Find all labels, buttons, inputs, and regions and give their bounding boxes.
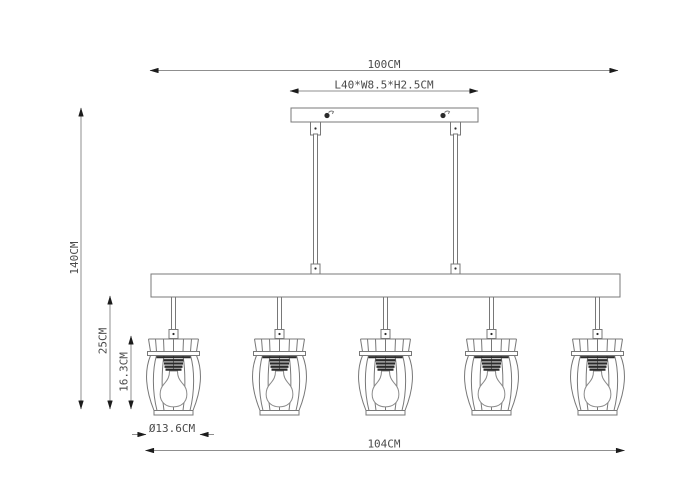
fixture-length-label: 104CM <box>367 438 400 451</box>
suspension-cable <box>314 134 318 265</box>
dim-canopy-size: L40*W8.5*H2.5CM <box>290 79 478 92</box>
lamp-cords <box>172 297 600 330</box>
lamp-cord <box>384 297 388 330</box>
dim-overall-width: 100CM <box>150 58 618 71</box>
dim-shade-height: 16.3CM <box>118 336 132 409</box>
lamp-cord <box>278 297 282 330</box>
cage-lamp <box>465 330 519 416</box>
dim-hanging-height: 25CM <box>97 296 111 409</box>
cord-grip <box>311 122 321 135</box>
shade-diameter-label: Ø13.6CM <box>149 422 196 435</box>
overall-width-label: 100CM <box>367 58 400 71</box>
lamp-cord <box>490 297 494 330</box>
lamp-cord <box>596 297 600 330</box>
dim-overall-height: 140CM <box>68 108 81 409</box>
cage-lamp <box>359 330 413 416</box>
dim-shade-diameter: Ø13.6CM <box>132 422 214 435</box>
dimension-drawing: 100CM L40*W8.5*H2.5CM <box>0 0 700 494</box>
overall-height-label: 140CM <box>68 241 81 274</box>
shade-height-label: 16.3CM <box>118 352 131 392</box>
ceiling-plate <box>291 108 478 122</box>
lamp-cord <box>172 297 176 330</box>
drawing-canvas: 100CM L40*W8.5*H2.5CM <box>0 0 700 494</box>
cage-lamp <box>147 330 201 416</box>
ceiling-canopy <box>291 108 478 135</box>
cable-connector <box>451 264 460 274</box>
cord-grip <box>451 122 461 135</box>
hanging-height-label: 25CM <box>97 327 110 354</box>
dim-fixture-length: 104CM <box>146 438 625 451</box>
cable-connector <box>311 264 320 274</box>
suspension-cable <box>454 134 458 265</box>
canopy-size-label: L40*W8.5*H2.5CM <box>334 79 434 92</box>
cage-lamp <box>253 330 307 416</box>
cage-lamp <box>571 330 625 416</box>
wood-beam <box>151 274 620 297</box>
